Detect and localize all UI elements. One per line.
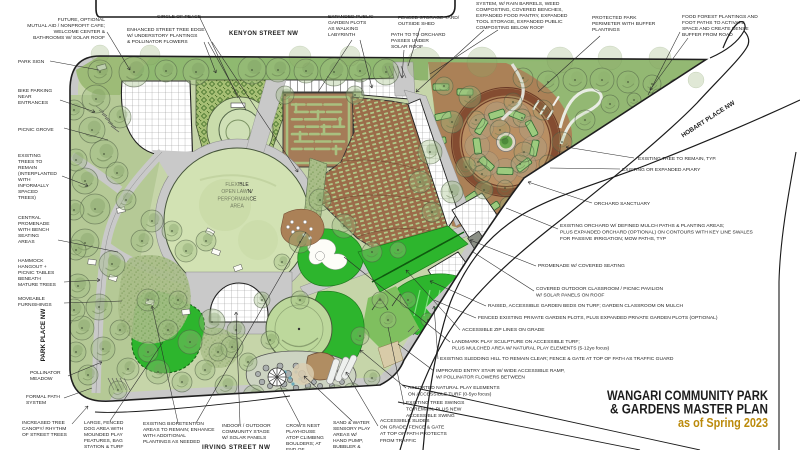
svg-text:as of Spring 2023: as of Spring 2023: [678, 415, 768, 430]
svg-text:MEADOW: MEADOW: [30, 376, 53, 382]
svg-text:AREAS TO REMAIN; ENHANCE: AREAS TO REMAIN; ENHANCE: [143, 427, 215, 433]
svg-text:EXISTING TREE SWINGS: EXISTING TREE SWINGS: [406, 400, 465, 406]
svg-text:PERIMETER WITH BUFFER: PERIMETER WITH BUFFER: [592, 21, 656, 27]
svg-text:PLUS MULCHED AREA W/ NATURAL P: PLUS MULCHED AREA W/ NATURAL PLAY ELEMEN…: [452, 346, 610, 352]
svg-text:POLLINATOR: POLLINATOR: [30, 370, 61, 376]
svg-text:BUFFER FROM ROAD: BUFFER FROM ROAD: [682, 32, 733, 38]
svg-text:RAISED, ACCESSIBLE GARDEN BEDS: RAISED, ACCESSIBLE GARDEN BEDS ON TURF; …: [488, 303, 683, 309]
svg-text:PASSES UNDER: PASSES UNDER: [391, 38, 429, 44]
svg-text:STATION & TURF: STATION & TURF: [84, 444, 123, 450]
svg-text:EXISTING TREE TO REMAIN, TYP.: EXISTING TREE TO REMAIN, TYP.: [638, 156, 716, 162]
svg-text:ENTRANCES: ENTRANCES: [18, 100, 49, 106]
svg-text:AT TOP OF PATH PROTECTS: AT TOP OF PATH PROTECTS: [380, 431, 447, 437]
svg-text:BENEATH: BENEATH: [18, 276, 41, 282]
svg-text:W/ POLLINATOR FLOWERS BETWEEN: W/ POLLINATOR FLOWERS BETWEEN: [436, 375, 525, 381]
svg-text:SYSTEM, W/ RAIN BARRELS, WEED: SYSTEM, W/ RAIN BARRELS, WEED: [476, 1, 560, 7]
svg-text:BOULDERS; AT: BOULDERS; AT: [286, 441, 321, 447]
svg-text:DOG AREA WITH: DOG AREA WITH: [84, 426, 124, 432]
svg-text:BATHROOMS W/ SOLAR ROOF: BATHROOMS W/ SOLAR ROOF: [33, 35, 105, 41]
svg-text:TREES TO: TREES TO: [18, 159, 42, 165]
svg-text:CROW'S NEST: CROW'S NEST: [286, 423, 320, 429]
svg-text:OUTSIDE SHED: OUTSIDE SHED: [398, 21, 435, 27]
svg-text:ENHANCED STREET TREE EDGE: ENHANCED STREET TREE EDGE: [127, 27, 205, 33]
svg-text:IRVING STREET NW: IRVING STREET NW: [202, 444, 270, 450]
svg-text:PROMENADE: PROMENADE: [18, 221, 50, 227]
svg-text:EXISTING OR EXPANDED APIARY: EXISTING OR EXPANDED APIARY: [622, 167, 701, 173]
svg-text:WITH ADDITIONAL: WITH ADDITIONAL: [143, 433, 186, 439]
svg-text:ORCHARD SANCTUARY: ORCHARD SANCTUARY: [594, 201, 651, 207]
svg-text:TO REMAIN, PLUS NEW: TO REMAIN, PLUS NEW: [406, 407, 462, 413]
svg-text:MOVEABLE: MOVEABLE: [18, 296, 46, 302]
svg-text:SENSORY PLAY: SENSORY PLAY: [333, 426, 371, 432]
svg-text:OF STREET TREES: OF STREET TREES: [22, 432, 68, 438]
svg-text:IMPROVED ENTRY STAIR W/ WIDE A: IMPROVED ENTRY STAIR W/ WIDE ACCESSIBLE …: [436, 368, 565, 374]
svg-text:PLANTINGS: PLANTINGS: [592, 27, 620, 33]
svg-text:ASSORTED NATURAL PLAY ELEMENTS: ASSORTED NATURAL PLAY ELEMENTS: [408, 385, 500, 391]
svg-text:SPACE AND CREATE DENSE: SPACE AND CREATE DENSE: [682, 26, 749, 32]
svg-text:FROM TRAFFIC: FROM TRAFFIC: [380, 438, 417, 444]
svg-text:PATH TO TO ORCHARD: PATH TO TO ORCHARD: [391, 32, 446, 38]
svg-text:COVERED OUTDOOR CLASSROOM / PI: COVERED OUTDOOR CLASSROOM / PICNIC PAVIL…: [536, 286, 663, 292]
svg-text:ON GRADE; FENCE & GATE: ON GRADE; FENCE & GATE: [380, 425, 445, 431]
svg-text:HANGOUT +: HANGOUT +: [18, 264, 47, 270]
svg-text:PLAYHOUSE: PLAYHOUSE: [286, 429, 316, 435]
svg-text:PICNIC GROVE: PICNIC GROVE: [18, 127, 54, 133]
svg-text:SEATING: SEATING: [18, 233, 39, 239]
svg-text:TOOL STORAGE, EXPANDED PUBLIC: TOOL STORAGE, EXPANDED PUBLIC: [476, 19, 563, 25]
svg-text:EXPANDED FOOD PANTRY, EXPANDED: EXPANDED FOOD PANTRY, EXPANDED: [476, 13, 568, 19]
svg-text:(INTERPLANTED: (INTERPLANTED: [18, 171, 57, 177]
svg-text:KENYON STREET NW: KENYON STREET NW: [229, 30, 298, 37]
svg-text:FOR PASSIVE IRRIGATION; MOW PA: FOR PASSIVE IRRIGATION; MOW PATHS, TYP: [560, 236, 666, 242]
svg-text:COMPOSTING BELOW ROOF: COMPOSTING BELOW ROOF: [476, 25, 544, 31]
svg-text:PARK PLACE NW: PARK PLACE NW: [40, 309, 47, 362]
svg-text:HAND PUMP,: HAND PUMP,: [333, 438, 363, 444]
svg-text:TREES): TREES): [18, 195, 36, 201]
svg-text:MUTUAL AID / NONPROFIT CAFE;: MUTUAL AID / NONPROFIT CAFE;: [27, 23, 105, 29]
svg-text:AS WALKING: AS WALKING: [328, 26, 358, 32]
svg-text:EXPANDED PUBLIC: EXPANDED PUBLIC: [328, 14, 374, 20]
svg-text:LABYRINTH: LABYRINTH: [328, 32, 356, 38]
svg-text:FORMAL PATH: FORMAL PATH: [26, 394, 60, 400]
svg-text:FOOT PATHS TO ACTIVATE: FOOT PATHS TO ACTIVATE: [682, 20, 745, 26]
svg-text:SAND & WATER: SAND & WATER: [333, 420, 370, 426]
svg-text:LANDMARK PLAY SCULPTURE ON ACC: LANDMARK PLAY SCULPTURE ON ACCESSIBLE TU…: [452, 339, 580, 345]
svg-text:WITH BENCH: WITH BENCH: [18, 227, 49, 233]
svg-text:COMMUNITY STAGE: COMMUNITY STAGE: [222, 429, 270, 435]
svg-text:W/ SOLAR PANELS ON ROOF: W/ SOLAR PANELS ON ROOF: [536, 293, 604, 299]
svg-text:ATOP CLIMBING: ATOP CLIMBING: [286, 435, 324, 441]
svg-text:& POLLINATOR FLOWERS: & POLLINATOR FLOWERS: [127, 39, 188, 45]
svg-text:FENCED STORAGE YARD/: FENCED STORAGE YARD/: [398, 15, 460, 21]
svg-text:HAMMOCK: HAMMOCK: [18, 258, 44, 264]
svg-text:EXISTING BIORETENTION: EXISTING BIORETENTION: [143, 421, 204, 427]
svg-text:W/ UNDERSTORY PLANTINGS: W/ UNDERSTORY PLANTINGS: [127, 33, 198, 39]
svg-text:FOOD FOREST PLANTINGS AND: FOOD FOREST PLANTINGS AND: [682, 14, 758, 20]
svg-text:CIRCLE OF PEACE: CIRCLE OF PEACE: [157, 14, 202, 20]
svg-text:BUBBLER &: BUBBLER &: [333, 444, 361, 450]
svg-text:EXISTING ORCHARD W/ DEFINED MU: EXISTING ORCHARD W/ DEFINED MULCH PATHS …: [560, 223, 724, 229]
svg-text:PROTECTED PARK: PROTECTED PARK: [592, 15, 637, 21]
svg-text:EXISTING: EXISTING: [18, 153, 41, 159]
svg-text:FUTURE, OPTIONAL: FUTURE, OPTIONAL: [58, 17, 106, 23]
svg-text:SPACED: SPACED: [18, 189, 38, 195]
svg-text:CENTRAL: CENTRAL: [18, 215, 41, 221]
svg-text:EXISTING SLEDDING HILL TO REMA: EXISTING SLEDDING HILL TO REMAIN CLEAR; …: [440, 356, 674, 362]
svg-text:INFORMALLY: INFORMALLY: [18, 183, 50, 189]
svg-text:COMPOSTING, COVERED BENCHES,: COMPOSTING, COVERED BENCHES,: [476, 7, 563, 13]
svg-text:LARGE, FENCED: LARGE, FENCED: [84, 420, 124, 426]
svg-text:WELCOME CENTER &: WELCOME CENTER &: [54, 29, 106, 35]
svg-text:ACCESSIBLE SLIDES: ACCESSIBLE SLIDES: [380, 418, 430, 424]
svg-text:PLANTINGS AS NEEDED: PLANTINGS AS NEEDED: [143, 439, 201, 445]
svg-text:FENCED EXISTING PRIVATE GARDEN: FENCED EXISTING PRIVATE GARDEN PLOTS, PL…: [478, 315, 718, 321]
svg-text:MATURE TREES: MATURE TREES: [18, 282, 57, 288]
svg-text:ACCESSIBLE ZIP LINES ON GRADE: ACCESSIBLE ZIP LINES ON GRADE: [462, 327, 545, 333]
svg-text:BIKE PARKING: BIKE PARKING: [18, 88, 52, 94]
svg-text:PLUS EXPANDED ORCHARD (OPTIONA: PLUS EXPANDED ORCHARD (OPTIONAL) ON CONT…: [560, 230, 753, 236]
svg-text:REMAIN: REMAIN: [18, 165, 37, 171]
svg-text:SYSTEM: SYSTEM: [26, 400, 46, 406]
svg-text:ON ACCESSIBLE TURF (0-5yo focu: ON ACCESSIBLE TURF (0-5yo focus): [408, 392, 492, 398]
svg-text:NEAR: NEAR: [18, 94, 32, 100]
svg-text:GARDEN PLOTS: GARDEN PLOTS: [328, 20, 367, 26]
svg-text:MOUNDED PLAY: MOUNDED PLAY: [84, 432, 124, 438]
svg-text:AREAS: AREAS: [18, 239, 35, 245]
svg-text:PROMENADE W/ COVERED SEATING: PROMENADE W/ COVERED SEATING: [538, 263, 625, 269]
svg-text:WITH: WITH: [18, 177, 31, 183]
svg-text:AREAS W/: AREAS W/: [333, 432, 358, 438]
svg-text:W/ SOLAR PANELS: W/ SOLAR PANELS: [222, 435, 267, 441]
svg-text:INDOOR / OUTDOOR: INDOOR / OUTDOOR: [222, 423, 271, 429]
svg-text:SOLAR ROOF: SOLAR ROOF: [391, 44, 423, 50]
svg-text:PICNIC TABLES: PICNIC TABLES: [18, 270, 55, 276]
svg-text:CANOPY/ RHYTHM: CANOPY/ RHYTHM: [22, 426, 66, 432]
svg-text:INCREASED TREE: INCREASED TREE: [22, 420, 66, 426]
svg-text:FEATURES, BAG: FEATURES, BAG: [84, 438, 123, 444]
svg-text:PARK SIGN: PARK SIGN: [18, 59, 45, 65]
svg-text:FURNISHINGS: FURNISHINGS: [18, 302, 52, 308]
